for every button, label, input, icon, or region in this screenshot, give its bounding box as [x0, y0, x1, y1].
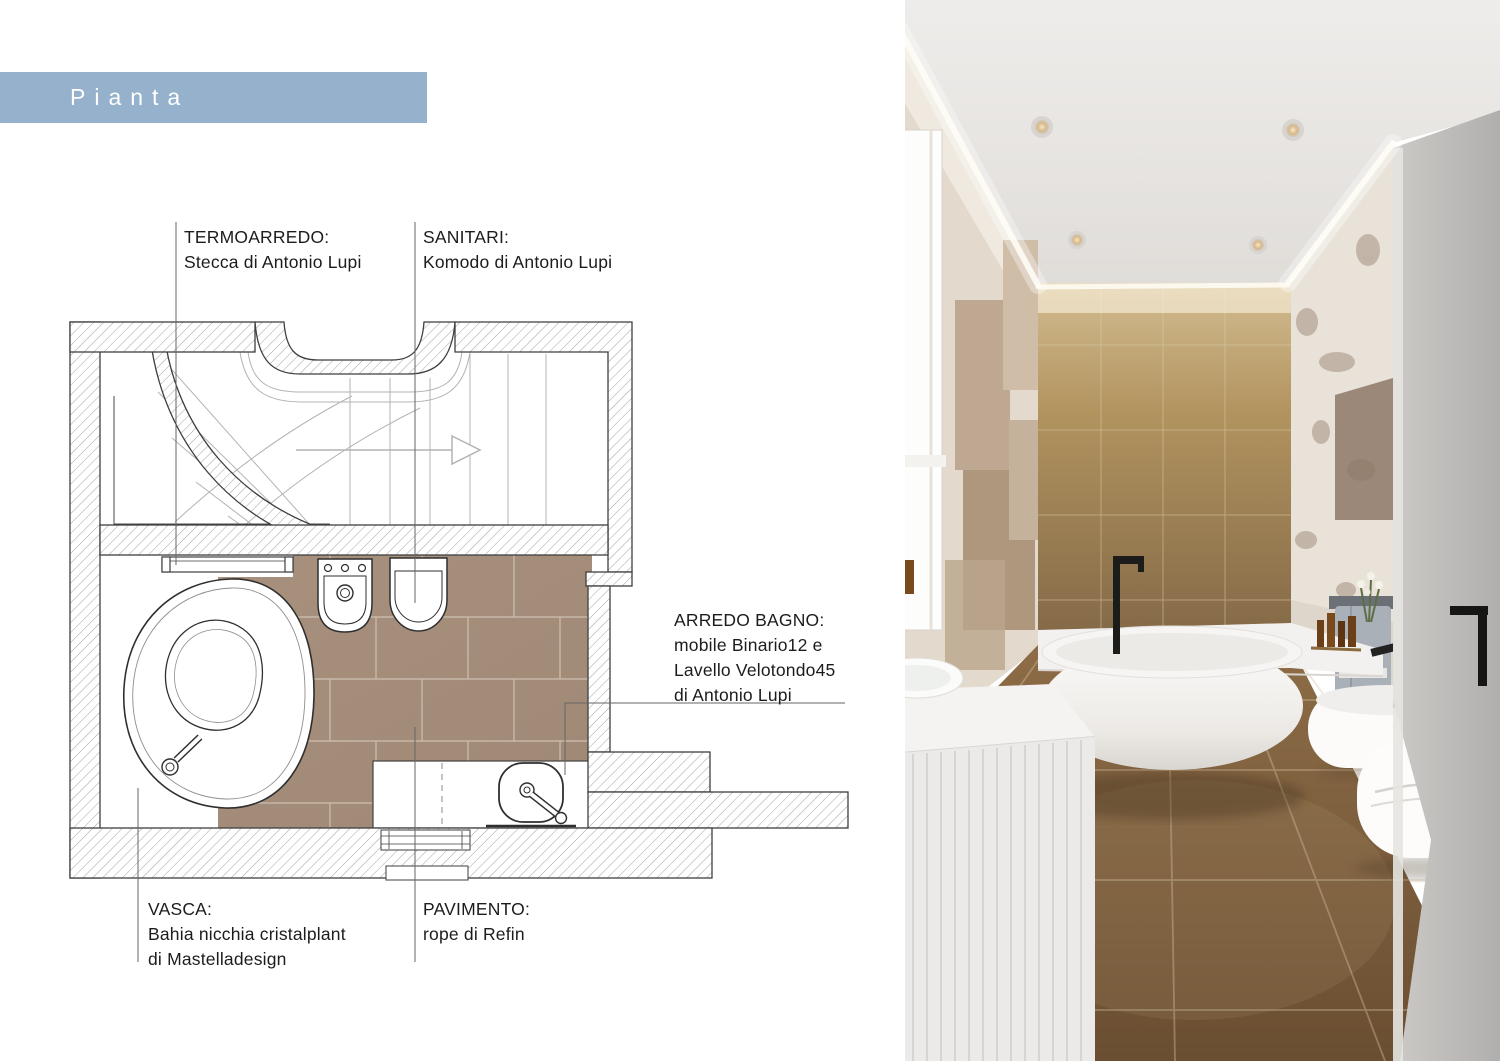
presentation-page: Pianta	[0, 0, 1500, 1061]
label-title: PAVIMENTO:	[423, 897, 530, 922]
label-body: di Mastelladesign	[148, 947, 346, 972]
label-sanitari: SANITARI: Komodo di Antonio Lupi	[423, 225, 612, 275]
stair-direction-arrow	[296, 436, 480, 464]
label-body: mobile Binario12 e	[674, 633, 835, 658]
label-pavimento: PAVIMENTO: rope di Refin	[423, 897, 530, 947]
vanity-plan	[373, 761, 592, 828]
window	[905, 130, 946, 630]
label-body: di Antonio Lupi	[674, 683, 835, 708]
vanity-render	[905, 658, 1095, 1061]
label-title: ARREDO BAGNO:	[674, 608, 835, 633]
label-termoarredo: TERMOARREDO: Stecca di Antonio Lupi	[184, 225, 362, 275]
bathroom-render-photo	[905, 0, 1500, 1061]
label-body: Lavello Velotondo45	[674, 658, 835, 683]
label-body: Stecca di Antonio Lupi	[184, 250, 362, 275]
label-title: TERMOARREDO:	[184, 225, 362, 250]
toilet-plan	[390, 558, 447, 631]
label-title: VASCA:	[148, 897, 346, 922]
label-body: Bahia nicchia cristalplant	[148, 922, 346, 947]
bidet-plan	[318, 559, 372, 632]
label-vasca: VASCA: Bahia nicchia cristalplant di Mas…	[148, 897, 346, 972]
label-body: Komodo di Antonio Lupi	[423, 250, 612, 275]
radiator-stecca	[162, 557, 293, 572]
back-wall-tiles	[1038, 283, 1291, 648]
label-body: rope di Refin	[423, 922, 530, 947]
label-arredo-bagno: ARREDO BAGNO: mobile Binario12 e Lavello…	[674, 608, 835, 708]
amber-bottle	[905, 560, 914, 594]
label-title: SANITARI:	[423, 225, 612, 250]
